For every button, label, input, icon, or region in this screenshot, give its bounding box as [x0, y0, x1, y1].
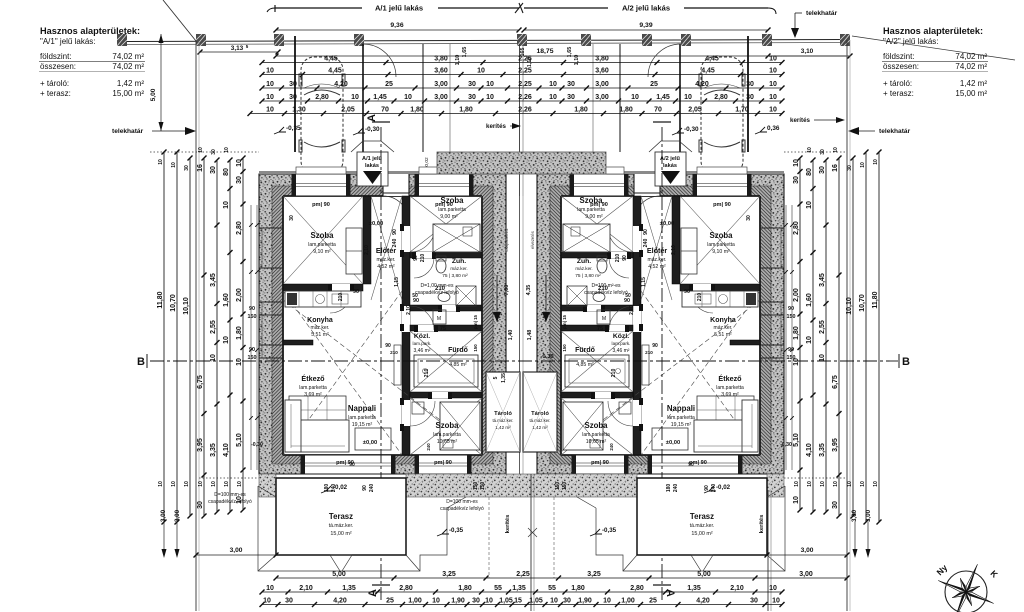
svg-text:-0,35: -0,35	[286, 125, 301, 132]
svg-text:10: 10	[266, 68, 274, 75]
svg-text:-0,35: -0,35	[602, 527, 617, 534]
svg-text:1,70: 1,70	[735, 107, 749, 114]
svg-text:30: 30	[285, 598, 293, 605]
svg-text:240: 240	[369, 484, 375, 493]
svg-text:30: 30	[567, 81, 575, 88]
svg-text:1,45: 1,45	[373, 94, 387, 101]
svg-text:pm| 90: pm| 90	[591, 460, 609, 466]
svg-text:lam.parketta: lam.parketta	[308, 242, 336, 248]
svg-text:10: 10	[158, 481, 164, 487]
svg-text:10: 10	[432, 598, 440, 605]
svg-text:lam.parketta: lam.parketta	[667, 415, 695, 421]
svg-text:10: 10	[550, 598, 558, 605]
svg-text:10: 10	[807, 147, 813, 153]
svg-text:2,26: 2,26	[518, 56, 532, 63]
svg-text:4,52 m²: 4,52 m²	[648, 264, 666, 270]
svg-text:30: 30	[468, 94, 476, 101]
svg-text:tá.máz.ker.: tá.máz.ker.	[690, 523, 714, 529]
svg-text:2,80: 2,80	[714, 94, 728, 101]
svg-text:9,39: 9,39	[639, 22, 652, 29]
svg-text:-0,35: -0,35	[449, 527, 464, 534]
svg-text:74,02 m²: 74,02 m²	[955, 52, 987, 61]
svg-text:"A/1" jelű lakás:: "A/1" jelű lakás:	[40, 37, 95, 46]
svg-text:1,15: 1,15	[641, 277, 647, 287]
svg-text:lam.park.: lam.park.	[413, 341, 432, 346]
svg-text:pm| 90: pm| 90	[312, 202, 330, 208]
svg-text:3,69 m²: 3,69 m²	[721, 392, 739, 398]
svg-text:3,00: 3,00	[865, 509, 872, 522]
svg-text:150: 150	[787, 314, 796, 320]
svg-text:2,10: 2,10	[364, 245, 370, 255]
svg-text:3,25: 3,25	[587, 571, 601, 578]
svg-text:Zuh.: Zuh.	[452, 258, 466, 265]
svg-text:2,00: 2,00	[236, 288, 243, 302]
svg-text:30: 30	[847, 165, 853, 171]
svg-text:30: 30	[236, 176, 243, 184]
svg-text:240: 240	[673, 484, 679, 493]
svg-text:tá.máz.ker.: tá.máz.ker.	[529, 418, 550, 423]
svg-text:180: 180	[666, 484, 672, 493]
svg-text:75: 75	[597, 326, 603, 332]
svg-text:10: 10	[860, 162, 866, 168]
svg-text:90: 90	[413, 255, 419, 261]
svg-text:5,10: 5,10	[236, 433, 243, 447]
svg-text:Terasz: Terasz	[690, 512, 714, 521]
svg-text:9,00 m²: 9,00 m²	[585, 214, 603, 220]
svg-text:5,51 m²: 5,51 m²	[311, 332, 329, 338]
svg-text:1,35: 1,35	[342, 585, 356, 592]
svg-text:210: 210	[420, 254, 426, 263]
svg-text:Terasz: Terasz	[329, 512, 353, 521]
svg-text:10: 10	[223, 201, 230, 209]
svg-text:csapadékvíz lefolyó: csapadékvíz lefolyó	[208, 499, 252, 505]
svg-text:10: 10	[485, 598, 493, 605]
svg-text:kerítés: kerítés	[505, 515, 511, 534]
svg-text:3,00: 3,00	[801, 547, 814, 554]
svg-text:2,05: 2,05	[688, 107, 702, 114]
svg-text:máz.ker.: máz.ker.	[377, 257, 396, 263]
svg-text:1,65: 1,65	[567, 47, 573, 58]
svg-text:30: 30	[746, 94, 754, 101]
svg-text:55: 55	[494, 585, 502, 592]
svg-text:pm| 90: pm| 90	[435, 202, 453, 208]
svg-text:2,55: 2,55	[819, 320, 826, 334]
svg-text:Szoba: Szoba	[436, 421, 460, 430]
svg-text:11,80: 11,80	[872, 291, 879, 308]
svg-text:3,60: 3,60	[595, 68, 609, 75]
svg-text:240: 240	[331, 484, 337, 493]
svg-text:Szoba: Szoba	[311, 231, 335, 240]
svg-text:1,80: 1,80	[574, 107, 588, 114]
svg-text:30: 30	[289, 94, 297, 101]
svg-text:210: 210	[697, 293, 703, 302]
svg-text:1,15: 1,15	[394, 277, 400, 287]
svg-text:összesen:: összesen:	[883, 62, 919, 71]
svg-text:1,35: 1,35	[512, 585, 526, 592]
svg-text:10: 10	[847, 481, 853, 487]
svg-text:3,25: 3,25	[442, 571, 456, 578]
svg-text:2,10: 2,10	[406, 305, 412, 315]
svg-text:74,02 m²: 74,02 m²	[112, 52, 144, 61]
svg-text:4,35: 4,35	[526, 285, 532, 296]
svg-text:±0,00: ±0,00	[666, 440, 680, 446]
svg-text:3,46 m²: 3,46 m²	[613, 348, 630, 354]
svg-text:3,00: 3,00	[434, 94, 448, 101]
svg-text:1,42 m²: 1,42 m²	[117, 79, 144, 88]
svg-text:Közl.: Közl.	[613, 333, 629, 340]
svg-text:D=100 mm-es: D=100 mm-es	[446, 499, 478, 505]
svg-text:10: 10	[266, 81, 274, 88]
svg-text:elvezetés: elvezetés	[530, 231, 535, 249]
svg-text:10: 10	[486, 94, 494, 101]
svg-text:30: 30	[563, 598, 571, 605]
svg-text:4,45: 4,45	[324, 56, 338, 63]
svg-text:2,26: 2,26	[518, 107, 532, 114]
svg-text:kerítés: kerítés	[759, 515, 765, 534]
svg-text:10: 10	[603, 598, 611, 605]
svg-text:D=100 mm-es: D=100 mm-es	[214, 492, 246, 498]
svg-text:2,05: 2,05	[341, 107, 355, 114]
svg-text:9,10 m²: 9,10 m²	[313, 249, 331, 255]
svg-text:30: 30	[819, 166, 826, 174]
svg-text:4,20: 4,20	[333, 598, 347, 605]
svg-text:földszint:: földszint:	[883, 52, 915, 61]
svg-text:+ terasz:: + terasz:	[40, 89, 71, 98]
svg-text:1,48: 1,48	[527, 330, 533, 341]
svg-text:0,36: 0,36	[767, 125, 780, 132]
svg-text:30: 30	[793, 176, 800, 184]
svg-text:4,45: 4,45	[705, 56, 719, 63]
svg-text:3,95: 3,95	[832, 438, 839, 452]
svg-text:30: 30	[184, 165, 190, 171]
svg-text:10: 10	[236, 358, 243, 366]
svg-text:máz.ker.: máz.ker.	[575, 266, 592, 271]
svg-text:10: 10	[198, 481, 204, 487]
svg-text:90: 90	[249, 306, 255, 312]
svg-text:4,10: 4,10	[223, 443, 230, 457]
svg-text:3,00: 3,00	[434, 81, 448, 88]
svg-text:30: 30	[468, 81, 476, 88]
svg-text:150: 150	[562, 344, 567, 352]
svg-text:Konyha: Konyha	[307, 317, 333, 324]
svg-text:90: 90	[788, 347, 794, 353]
svg-text:lam.parketta: lam.parketta	[716, 385, 744, 391]
svg-text:10: 10	[772, 598, 780, 605]
svg-text:3,60: 3,60	[434, 68, 448, 75]
svg-text:máz.ker.: máz.ker.	[311, 325, 330, 331]
svg-text:3,69 m²: 3,69 m²	[304, 392, 322, 398]
svg-text:10,65 m²: 10,65 m²	[437, 439, 458, 445]
svg-text:10: 10	[171, 481, 177, 487]
svg-text:90: 90	[385, 343, 391, 349]
svg-text:2,26: 2,26	[518, 94, 532, 101]
svg-text:lam.park.: lam.park.	[612, 341, 631, 346]
svg-text:2,80: 2,80	[793, 221, 800, 235]
svg-text:15,00 m²: 15,00 m²	[112, 89, 144, 98]
svg-text:3,35: 3,35	[819, 443, 826, 457]
svg-text:A/1 jelű lakás: A/1 jelű lakás	[375, 4, 423, 13]
svg-text:90: 90	[622, 255, 628, 261]
svg-text:30: 30	[289, 81, 297, 88]
svg-text:lakás: lakás	[365, 163, 379, 169]
svg-text:1,90: 1,90	[578, 598, 592, 605]
svg-text:10: 10	[769, 585, 777, 592]
svg-text:210: 210	[424, 369, 430, 378]
svg-text:30: 30	[472, 598, 480, 605]
svg-text:70: 70	[654, 107, 662, 114]
svg-text:tá.máz.ker.: tá.máz.ker.	[492, 418, 513, 423]
svg-text:1,90: 1,90	[451, 598, 465, 605]
svg-text:90: 90	[688, 462, 694, 468]
svg-text:-0,30: -0,30	[684, 126, 699, 133]
svg-text:210: 210	[338, 293, 344, 302]
svg-text:A: A	[664, 589, 676, 597]
svg-text:2,25: 2,25	[516, 571, 530, 578]
svg-text:pm| 90: pm| 90	[713, 202, 731, 208]
svg-text:±0,00: ±0,00	[363, 440, 377, 446]
svg-text:Konyha: Konyha	[710, 317, 736, 324]
svg-text:10: 10	[184, 481, 190, 487]
svg-text:lam.parketta: lam.parketta	[707, 242, 735, 248]
svg-text:pm| 90: pm| 90	[590, 202, 608, 208]
svg-text:2,00: 2,00	[793, 288, 800, 302]
svg-text:70: 70	[381, 107, 389, 114]
svg-text:1,80: 1,80	[458, 585, 472, 592]
svg-text:10,70: 10,70	[170, 294, 177, 312]
svg-text:A/2 jelű lakás: A/2 jelű lakás	[622, 4, 670, 13]
svg-text:4,20: 4,20	[695, 81, 709, 88]
svg-text:2,10: 2,10	[671, 245, 677, 255]
svg-text:30: 30	[289, 215, 295, 221]
svg-text:3,00: 3,00	[174, 509, 181, 522]
svg-text:3,80: 3,80	[434, 56, 448, 63]
svg-text:10: 10	[266, 94, 274, 101]
svg-text:10: 10	[549, 94, 557, 101]
svg-text:1,00: 1,00	[408, 598, 422, 605]
svg-text:1,80: 1,80	[410, 107, 424, 114]
svg-text:10: 10	[237, 481, 243, 487]
svg-text:10: 10	[769, 81, 777, 88]
svg-text:csapadékvíz: csapadékvíz	[504, 228, 509, 251]
svg-text:9,10 m²: 9,10 m²	[712, 249, 730, 255]
svg-text:10,65 m²: 10,65 m²	[586, 439, 607, 445]
svg-text:1,10: 1,10	[455, 55, 461, 66]
svg-text:10: 10	[198, 147, 204, 153]
svg-text:10: 10	[833, 147, 839, 153]
svg-text:30: 30	[210, 166, 217, 174]
svg-text:210: 210	[611, 369, 617, 378]
svg-text:-0,30: -0,30	[365, 126, 380, 133]
svg-text:B: B	[137, 356, 145, 368]
svg-text:0,02: 0,02	[424, 157, 430, 167]
svg-text:1,05: 1,05	[499, 598, 513, 605]
svg-text:5,00: 5,00	[332, 571, 346, 578]
svg-text:csapadékvíz lefolyó: csapadékvíz lefolyó	[415, 290, 459, 296]
svg-text:1,05: 1,05	[529, 598, 543, 605]
svg-text:15,00 m²: 15,00 m²	[955, 89, 987, 98]
svg-text:30: 30	[832, 501, 839, 509]
svg-text:4,10: 4,10	[806, 443, 813, 457]
svg-text:1,00: 1,00	[621, 598, 635, 605]
svg-text:3,00: 3,00	[595, 81, 609, 88]
svg-text:1,42 m²: 1,42 m²	[960, 79, 987, 88]
svg-text:10: 10	[769, 94, 777, 101]
svg-text:90: 90	[349, 462, 355, 468]
svg-text:210: 210	[645, 350, 653, 355]
svg-text:74,02 m²: 74,02 m²	[955, 62, 987, 71]
svg-text:Fürdő: Fürdő	[448, 347, 468, 354]
svg-text:25: 25	[649, 598, 657, 605]
svg-text:+ tároló:: + tároló:	[883, 79, 912, 88]
svg-text:30: 30	[746, 81, 754, 88]
svg-text:10: 10	[263, 598, 271, 605]
svg-text:földszint:: földszint:	[40, 52, 72, 61]
svg-text:150: 150	[248, 314, 257, 320]
svg-text:90: 90	[652, 343, 658, 349]
svg-text:150: 150	[555, 482, 561, 491]
svg-text:9,00 m²: 9,00 m²	[440, 214, 458, 220]
svg-text:4,52 m²: 4,52 m²	[377, 264, 395, 270]
svg-text:30: 30	[211, 149, 217, 155]
svg-text:10: 10	[351, 94, 359, 101]
svg-text:10: 10	[769, 107, 777, 114]
svg-text:3,95: 3,95	[197, 438, 204, 452]
svg-text:pm| 15: pm| 15	[562, 314, 567, 328]
svg-text:1,80: 1,80	[619, 107, 633, 114]
svg-text:1,30: 1,30	[292, 107, 306, 114]
svg-text:Zuh.: Zuh.	[577, 258, 591, 265]
svg-text:25: 25	[385, 81, 393, 88]
svg-text:240: 240	[426, 443, 431, 451]
svg-text:75 | 3,80 m²: 75 | 3,80 m²	[575, 273, 601, 279]
svg-text:10: 10	[806, 336, 813, 344]
svg-text:10: 10	[873, 481, 879, 487]
svg-text:210: 210	[615, 254, 621, 263]
svg-text:Szoba: Szoba	[710, 231, 734, 240]
svg-text:10: 10	[158, 159, 164, 165]
svg-text:18,75: 18,75	[536, 48, 553, 55]
svg-text:10: 10	[684, 94, 692, 101]
svg-text:16: 16	[197, 164, 204, 172]
svg-text:5,00: 5,00	[697, 571, 711, 578]
svg-text:10: 10	[769, 68, 777, 75]
svg-text:-0,02: -0,02	[716, 484, 731, 491]
svg-text:9,36: 9,36	[390, 22, 403, 29]
svg-text:3,00: 3,00	[230, 547, 243, 554]
svg-text:3,10: 3,10	[801, 48, 814, 55]
svg-text:Hasznos alapterületek:: Hasznos alapterületek:	[40, 26, 140, 36]
svg-text:4,45: 4,45	[328, 68, 342, 75]
svg-text:5,10: 5,10	[793, 433, 800, 447]
svg-text:4,85 m²: 4,85 m²	[576, 362, 594, 368]
svg-text:5,51 m²: 5,51 m²	[714, 332, 732, 338]
svg-text:Fürdő: Fürdő	[575, 347, 595, 354]
svg-text:10: 10	[236, 159, 243, 167]
svg-text:kerítés: kerítés	[486, 123, 507, 130]
svg-text:telekhatár: telekhatár	[806, 10, 838, 17]
svg-text:4,20: 4,20	[334, 81, 348, 88]
svg-text:1,60: 1,60	[223, 293, 230, 307]
svg-text:3,13: 3,13	[231, 45, 244, 52]
svg-text:Szoba: Szoba	[585, 421, 609, 430]
svg-text:1,35: 1,35	[687, 585, 701, 592]
svg-text:1,40: 1,40	[508, 330, 514, 341]
svg-text:30: 30	[750, 598, 758, 605]
svg-text:4,45: 4,45	[701, 68, 715, 75]
svg-text:1,80: 1,80	[459, 107, 473, 114]
svg-text:10: 10	[477, 68, 485, 75]
svg-text:1,80: 1,80	[236, 326, 243, 340]
svg-text:10: 10	[860, 481, 866, 487]
svg-text:A/2 jelű: A/2 jelű	[660, 156, 680, 162]
svg-text:25: 25	[386, 598, 394, 605]
svg-text:M: M	[437, 316, 441, 322]
svg-text:2,10: 2,10	[629, 305, 635, 315]
svg-text:-0,30: -0,30	[540, 354, 553, 360]
svg-text:240: 240	[392, 239, 398, 248]
svg-text:Étkező: Étkező	[718, 374, 742, 383]
svg-text:pm| 90: pm| 90	[434, 460, 452, 466]
svg-text:5,00: 5,00	[150, 88, 157, 101]
svg-text:90: 90	[353, 289, 359, 295]
svg-text:3,35: 3,35	[210, 443, 217, 457]
svg-text:10: 10	[224, 481, 230, 487]
svg-text:240: 240	[609, 443, 614, 451]
svg-text:10,10: 10,10	[183, 297, 190, 315]
svg-text:10: 10	[266, 585, 274, 592]
svg-text:74,02 m²: 74,02 m²	[112, 62, 144, 71]
svg-text:25: 25	[650, 81, 658, 88]
svg-text:3,46 m²: 3,46 m²	[414, 348, 431, 354]
svg-text:lam.parketta: lam.parketta	[582, 432, 610, 438]
svg-text:+ terasz:: + terasz:	[883, 89, 914, 98]
svg-text:A/1 jelű: A/1 jelű	[362, 156, 382, 162]
svg-text:10,70: 10,70	[859, 294, 866, 312]
svg-text:3,00: 3,00	[595, 94, 609, 101]
svg-text:10,10: 10,10	[846, 297, 853, 315]
svg-text:B: B	[902, 356, 910, 368]
svg-text:Étkező: Étkező	[301, 374, 325, 383]
svg-text:10: 10	[873, 159, 879, 165]
svg-text:10: 10	[549, 81, 557, 88]
svg-text:3,00: 3,00	[851, 509, 858, 522]
svg-text:30: 30	[197, 501, 204, 509]
svg-text:150: 150	[248, 355, 257, 361]
svg-text:30: 30	[567, 94, 575, 101]
svg-text:A: A	[366, 114, 378, 122]
svg-text:90: 90	[643, 229, 649, 235]
svg-text:lam.parketta: lam.parketta	[299, 385, 327, 391]
svg-text:80: 80	[806, 168, 813, 176]
svg-text:240: 240	[643, 239, 649, 248]
svg-text:10: 10	[211, 481, 217, 487]
svg-text:3,45: 3,45	[819, 273, 826, 287]
svg-text:10: 10	[631, 94, 639, 101]
svg-text:150: 150	[473, 344, 478, 352]
svg-text:2,25: 2,25	[518, 68, 532, 75]
svg-text:D=1,00 mm-es: D=1,00 mm-es	[421, 283, 454, 289]
svg-text:"A/2" jelű lakás:: "A/2" jelű lakás:	[883, 37, 938, 46]
svg-text:D=100 m²-es: D=100 m²-es	[591, 283, 621, 289]
svg-text:Nappali: Nappali	[348, 404, 376, 413]
svg-text:1,80: 1,80	[793, 326, 800, 340]
svg-text:telekhatár: telekhatár	[879, 128, 911, 135]
svg-text:90: 90	[249, 347, 255, 353]
svg-text:+ tároló:: + tároló:	[40, 79, 69, 88]
svg-text:150: 150	[480, 482, 486, 491]
svg-text:10: 10	[793, 159, 800, 167]
svg-text:6,75: 6,75	[197, 375, 204, 389]
